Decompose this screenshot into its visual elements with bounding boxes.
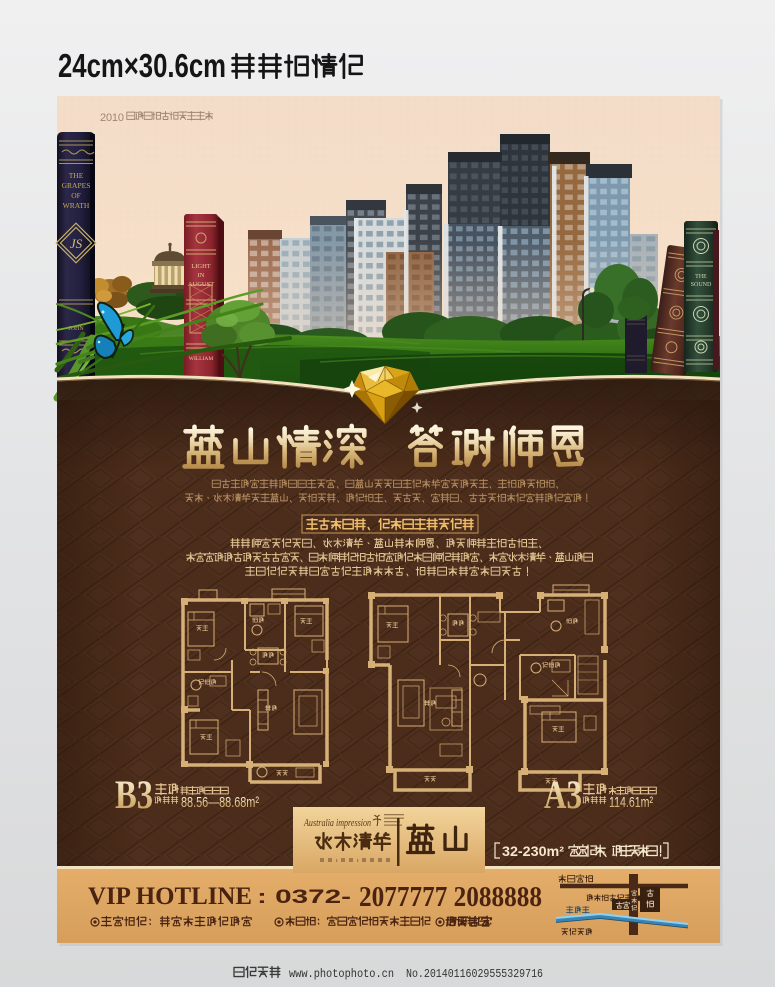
svg-text:AUGUST: AUGUST	[188, 281, 214, 288]
svg-text:WRATH: WRATH	[63, 201, 90, 210]
svg-text:A3: A3	[544, 772, 582, 817]
svg-text:B3: B3	[115, 772, 153, 817]
svg-text:2077777 2088888: 2077777 2088888	[359, 881, 542, 913]
svg-text:2010: 2010	[100, 112, 124, 124]
svg-text:32-230m²: 32-230m²	[502, 844, 565, 859]
svg-text:Australia impression: Australia impression	[303, 818, 371, 829]
svg-text:VIP HOTLINE: VIP HOTLINE	[88, 883, 252, 910]
svg-text:THE: THE	[695, 274, 707, 280]
svg-text:No.20140116029555329716: No.20140116029555329716	[406, 967, 543, 981]
svg-text:JS: JS	[70, 236, 83, 251]
svg-text:www.photophoto.cn: www.photophoto.cn	[289, 967, 394, 981]
svg-text:THE: THE	[69, 171, 84, 180]
svg-text:SOUND: SOUND	[691, 282, 712, 288]
svg-text:OF: OF	[71, 191, 81, 200]
svg-text:WILLIAM: WILLIAM	[189, 356, 214, 362]
svg-text:GRAPES: GRAPES	[62, 181, 91, 190]
svg-text:IN: IN	[198, 272, 205, 279]
svg-text:LIGHT: LIGHT	[191, 263, 211, 270]
svg-text:114.61m²: 114.61m²	[609, 794, 653, 811]
svg-text:24cm×30.6cm: 24cm×30.6cm	[58, 47, 226, 84]
svg-text:88.56—88.68m²: 88.56—88.68m²	[181, 794, 259, 811]
svg-text:: 0372-: : 0372-	[257, 887, 351, 908]
